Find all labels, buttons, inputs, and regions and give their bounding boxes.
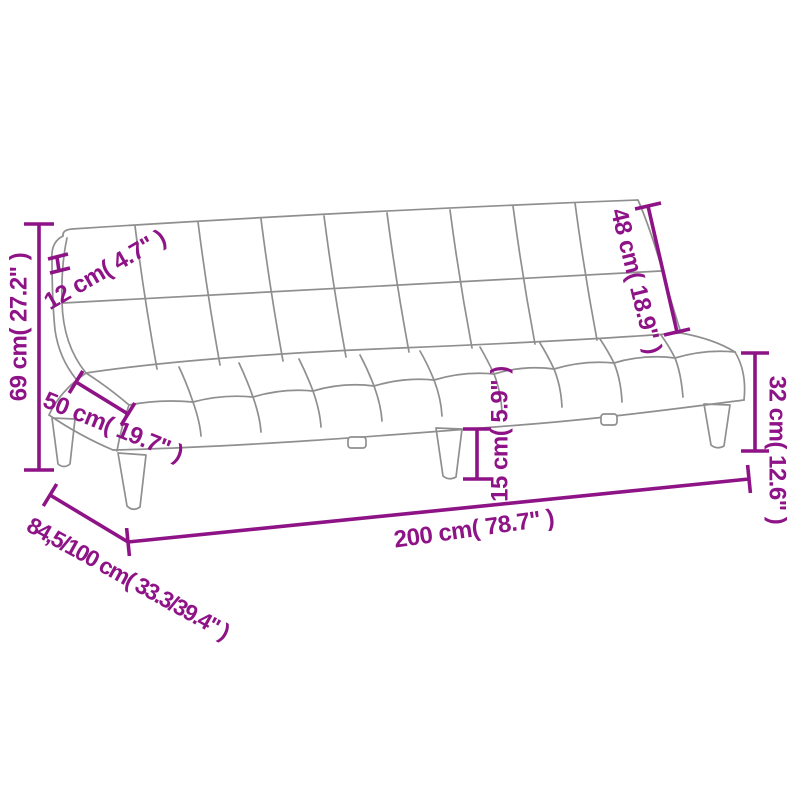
seat-top-seam-1 bbox=[179, 367, 193, 402]
seat-top-seam-5 bbox=[420, 351, 434, 380]
sofa-leg-right bbox=[704, 404, 730, 448]
backrest-seam-8 bbox=[575, 203, 597, 340]
seat-back-edge bbox=[86, 333, 681, 373]
seat-front-seam-1 bbox=[193, 402, 201, 436]
seat-front-seam-8 bbox=[614, 363, 622, 402]
seat-front-seam-3 bbox=[313, 391, 321, 427]
backrest-seam-2 bbox=[198, 222, 220, 365]
sofa-leg-middle bbox=[436, 428, 462, 479]
seat-right-top-edge bbox=[681, 333, 735, 352]
seat-front-seam-2 bbox=[253, 397, 261, 432]
seat-bottom-edge bbox=[113, 400, 744, 450]
hinge-tab-right bbox=[601, 414, 617, 425]
backrest-seam-7 bbox=[513, 206, 535, 344]
seat-top-seam-8 bbox=[600, 339, 614, 363]
seat-top-seam-2 bbox=[239, 363, 253, 397]
seat-top-seam-7 bbox=[540, 343, 554, 369]
seat-front-seam-5 bbox=[434, 380, 442, 416]
dim-overall-height-label: 69 cm( 27.2" ) bbox=[6, 253, 33, 401]
seat-front-seam-4 bbox=[374, 386, 382, 421]
backrest-seam-6 bbox=[450, 210, 472, 348]
diagram-svg: 69 cm( 27.2" ) 12 cm( 4.7" ) 50 cm( 19.7… bbox=[0, 0, 800, 800]
backrest-seam-4 bbox=[324, 216, 346, 357]
seat-top-seam-3 bbox=[299, 359, 313, 391]
seat-front-seam-7 bbox=[554, 369, 562, 407]
hinge-tab-left bbox=[348, 437, 366, 448]
backrest-seam-5 bbox=[387, 213, 409, 352]
dimension-labels: 69 cm( 27.2" ) 12 cm( 4.7" ) 50 cm( 19.7… bbox=[6, 206, 791, 645]
backrest-seam-3 bbox=[261, 219, 283, 361]
seat-front-seam-9 bbox=[675, 358, 683, 397]
seat-top-seam-4 bbox=[360, 355, 374, 386]
backrest-outline bbox=[63, 200, 681, 333]
dim-leg-height-label: 15 cm( 5.9" ) bbox=[487, 366, 514, 502]
sofa-leg-front-left bbox=[118, 453, 146, 509]
dim-backrest-height-label: 48 cm( 18.9" ) bbox=[605, 206, 667, 357]
seat-crest-edge bbox=[129, 351, 735, 405]
backrest-mid-seam bbox=[63, 271, 661, 303]
seat-right-edge bbox=[735, 352, 745, 400]
sofa-dimension-diagram: 69 cm( 27.2" ) 12 cm( 4.7" ) 50 cm( 19.7… bbox=[0, 0, 800, 800]
dim-seat-height-label: 32 cm( 12.6" ) bbox=[764, 376, 791, 524]
